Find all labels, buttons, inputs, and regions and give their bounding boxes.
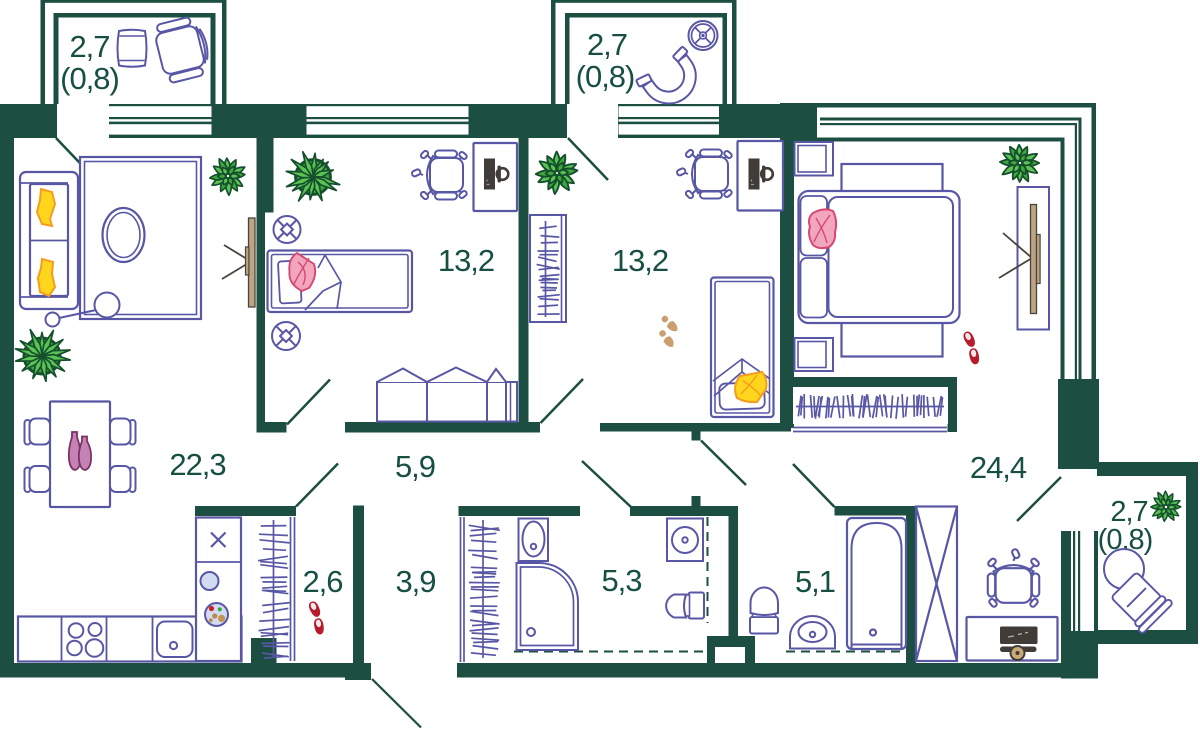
svg-text:2,6: 2,6: [302, 564, 342, 599]
svg-text:2,7: 2,7: [69, 29, 109, 64]
svg-text:13,2: 13,2: [438, 243, 494, 278]
svg-text:13,2: 13,2: [612, 243, 668, 278]
svg-text:5,1: 5,1: [795, 564, 835, 599]
svg-text:24,4: 24,4: [970, 450, 1027, 485]
svg-text:5,3: 5,3: [601, 563, 641, 598]
svg-text:2,7: 2,7: [587, 27, 627, 62]
svg-text:5,9: 5,9: [395, 449, 435, 484]
svg-text:22,3: 22,3: [169, 447, 225, 482]
svg-text:(0,8): (0,8): [576, 59, 635, 94]
svg-text:(0,8): (0,8): [60, 61, 119, 96]
svg-text:3,9: 3,9: [395, 564, 435, 599]
